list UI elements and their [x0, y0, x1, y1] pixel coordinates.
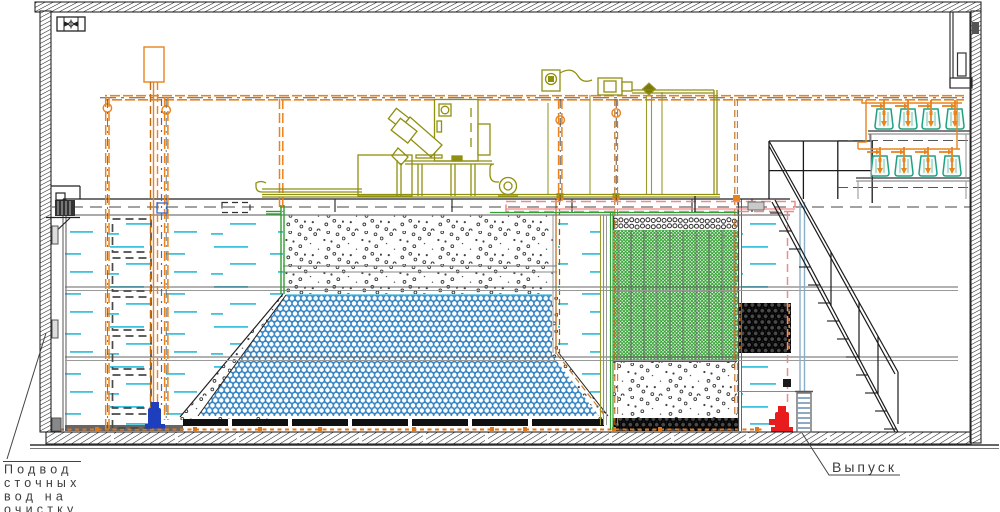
- svg-text:вод на: вод на: [4, 490, 67, 504]
- svg-text:Подвод: Подвод: [4, 463, 73, 477]
- svg-text:очистку: очистку: [4, 503, 77, 512]
- svg-text:сточных: сточных: [4, 476, 81, 490]
- svg-text:Выпуск: Выпуск: [832, 459, 897, 475]
